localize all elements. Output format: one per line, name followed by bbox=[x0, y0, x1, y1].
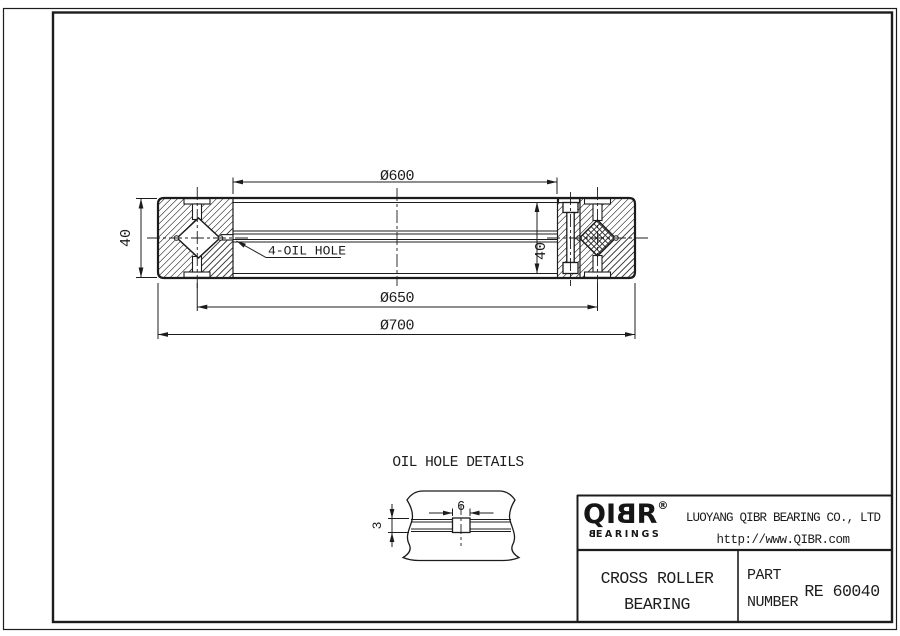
registered-mark-icon: ® bbox=[657, 499, 668, 512]
product-name-line1: CROSS ROLLER bbox=[601, 569, 714, 588]
logo-subtitle: BEARINGS bbox=[586, 530, 683, 540]
part-number: RE 60040 bbox=[804, 582, 879, 601]
inner-border bbox=[53, 13, 892, 623]
dim-hole-depth-label: 3 bbox=[370, 522, 385, 530]
dim-od-label: Ø700 bbox=[380, 318, 415, 335]
logo-brand: QIBR bbox=[583, 501, 657, 528]
product-name-line2: BEARING bbox=[624, 595, 690, 614]
oil-hole-label: 4-OIL HOLE bbox=[268, 244, 346, 259]
dim-width-right-label: 40 bbox=[533, 242, 550, 260]
dim-hole-width-label: 6 bbox=[457, 500, 465, 515]
dim-bore-label: Ø600 bbox=[380, 168, 415, 185]
company-name: LUOYANG QIBR BEARING CO., LTD bbox=[686, 511, 881, 525]
bearing-section-view bbox=[136, 178, 648, 340]
qibr-logo: QIBR® BEARINGS bbox=[583, 500, 683, 540]
company-website: http://www.QIBR.com bbox=[716, 533, 849, 547]
dim-pitch-label: Ø650 bbox=[380, 290, 415, 307]
dim-width-left-label: 40 bbox=[118, 229, 135, 247]
part-label-line1: PART bbox=[747, 567, 782, 584]
drawing-sheet: Ø600 Ø650 Ø700 40 40 4-OIL HOLE bbox=[0, 0, 900, 636]
detail-title: OIL HOLE DETAILS bbox=[392, 455, 523, 471]
drawing-linework: Ø600 Ø650 Ø700 40 40 4-OIL HOLE bbox=[0, 0, 900, 636]
oil-hole-detail bbox=[388, 491, 519, 561]
part-label-line2: NUMBER bbox=[747, 594, 799, 611]
